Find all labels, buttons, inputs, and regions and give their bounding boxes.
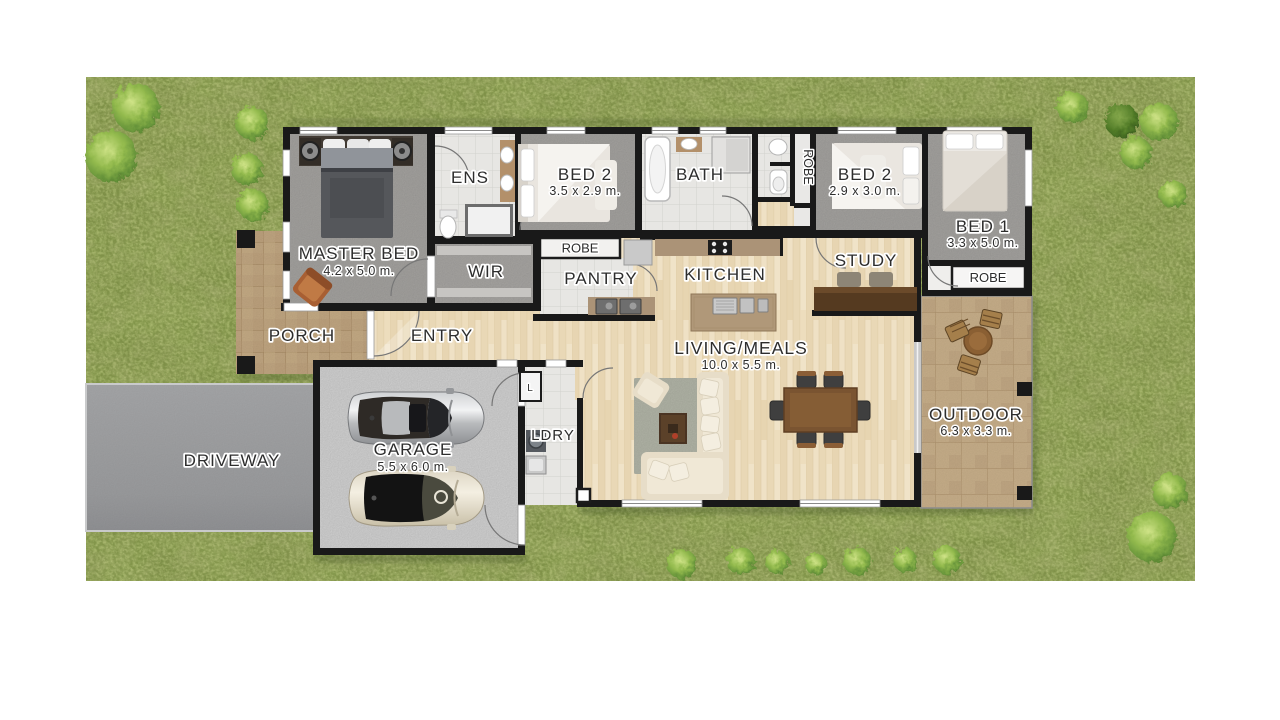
svg-text:KITCHEN: KITCHEN bbox=[684, 265, 766, 284]
svg-text:L: L bbox=[527, 383, 533, 394]
svg-text:LDRY: LDRY bbox=[531, 427, 575, 444]
svg-text:6.3 x 3.3 m.: 6.3 x 3.3 m. bbox=[940, 424, 1011, 438]
svg-text:STUDY: STUDY bbox=[835, 251, 898, 270]
svg-text:5.5 x 6.0 m.: 5.5 x 6.0 m. bbox=[377, 460, 448, 474]
svg-text:ENS: ENS bbox=[451, 168, 489, 187]
svg-text:PORCH: PORCH bbox=[269, 326, 335, 345]
svg-text:ROBE: ROBE bbox=[801, 149, 815, 184]
svg-text:BED 1: BED 1 bbox=[956, 217, 1010, 236]
svg-text:4.2 x 5.0 m.: 4.2 x 5.0 m. bbox=[323, 264, 394, 278]
svg-text:WIR: WIR bbox=[468, 262, 504, 281]
svg-text:3.3 x 5.0 m.: 3.3 x 5.0 m. bbox=[947, 236, 1018, 250]
svg-text:DRIVEWAY: DRIVEWAY bbox=[184, 451, 281, 470]
svg-text:BED 2: BED 2 bbox=[558, 165, 612, 184]
svg-text:BED 2: BED 2 bbox=[838, 165, 892, 184]
svg-text:BATH: BATH bbox=[676, 165, 724, 184]
svg-text:PANTRY: PANTRY bbox=[564, 269, 637, 288]
svg-text:2.9 x 3.0 m.: 2.9 x 3.0 m. bbox=[829, 184, 900, 198]
svg-text:ENTRY: ENTRY bbox=[411, 326, 473, 345]
svg-text:OUTDOOR: OUTDOOR bbox=[929, 405, 1023, 424]
svg-text:GARAGE: GARAGE bbox=[374, 440, 453, 459]
svg-text:ROBE: ROBE bbox=[562, 241, 599, 256]
svg-text:10.0 x 5.5 m.: 10.0 x 5.5 m. bbox=[702, 358, 781, 372]
svg-text:MASTER BED: MASTER BED bbox=[299, 244, 420, 263]
svg-text:LIVING/MEALS: LIVING/MEALS bbox=[674, 338, 808, 358]
svg-text:3.5 x 2.9 m.: 3.5 x 2.9 m. bbox=[549, 184, 620, 198]
svg-text:ROBE: ROBE bbox=[970, 270, 1007, 285]
